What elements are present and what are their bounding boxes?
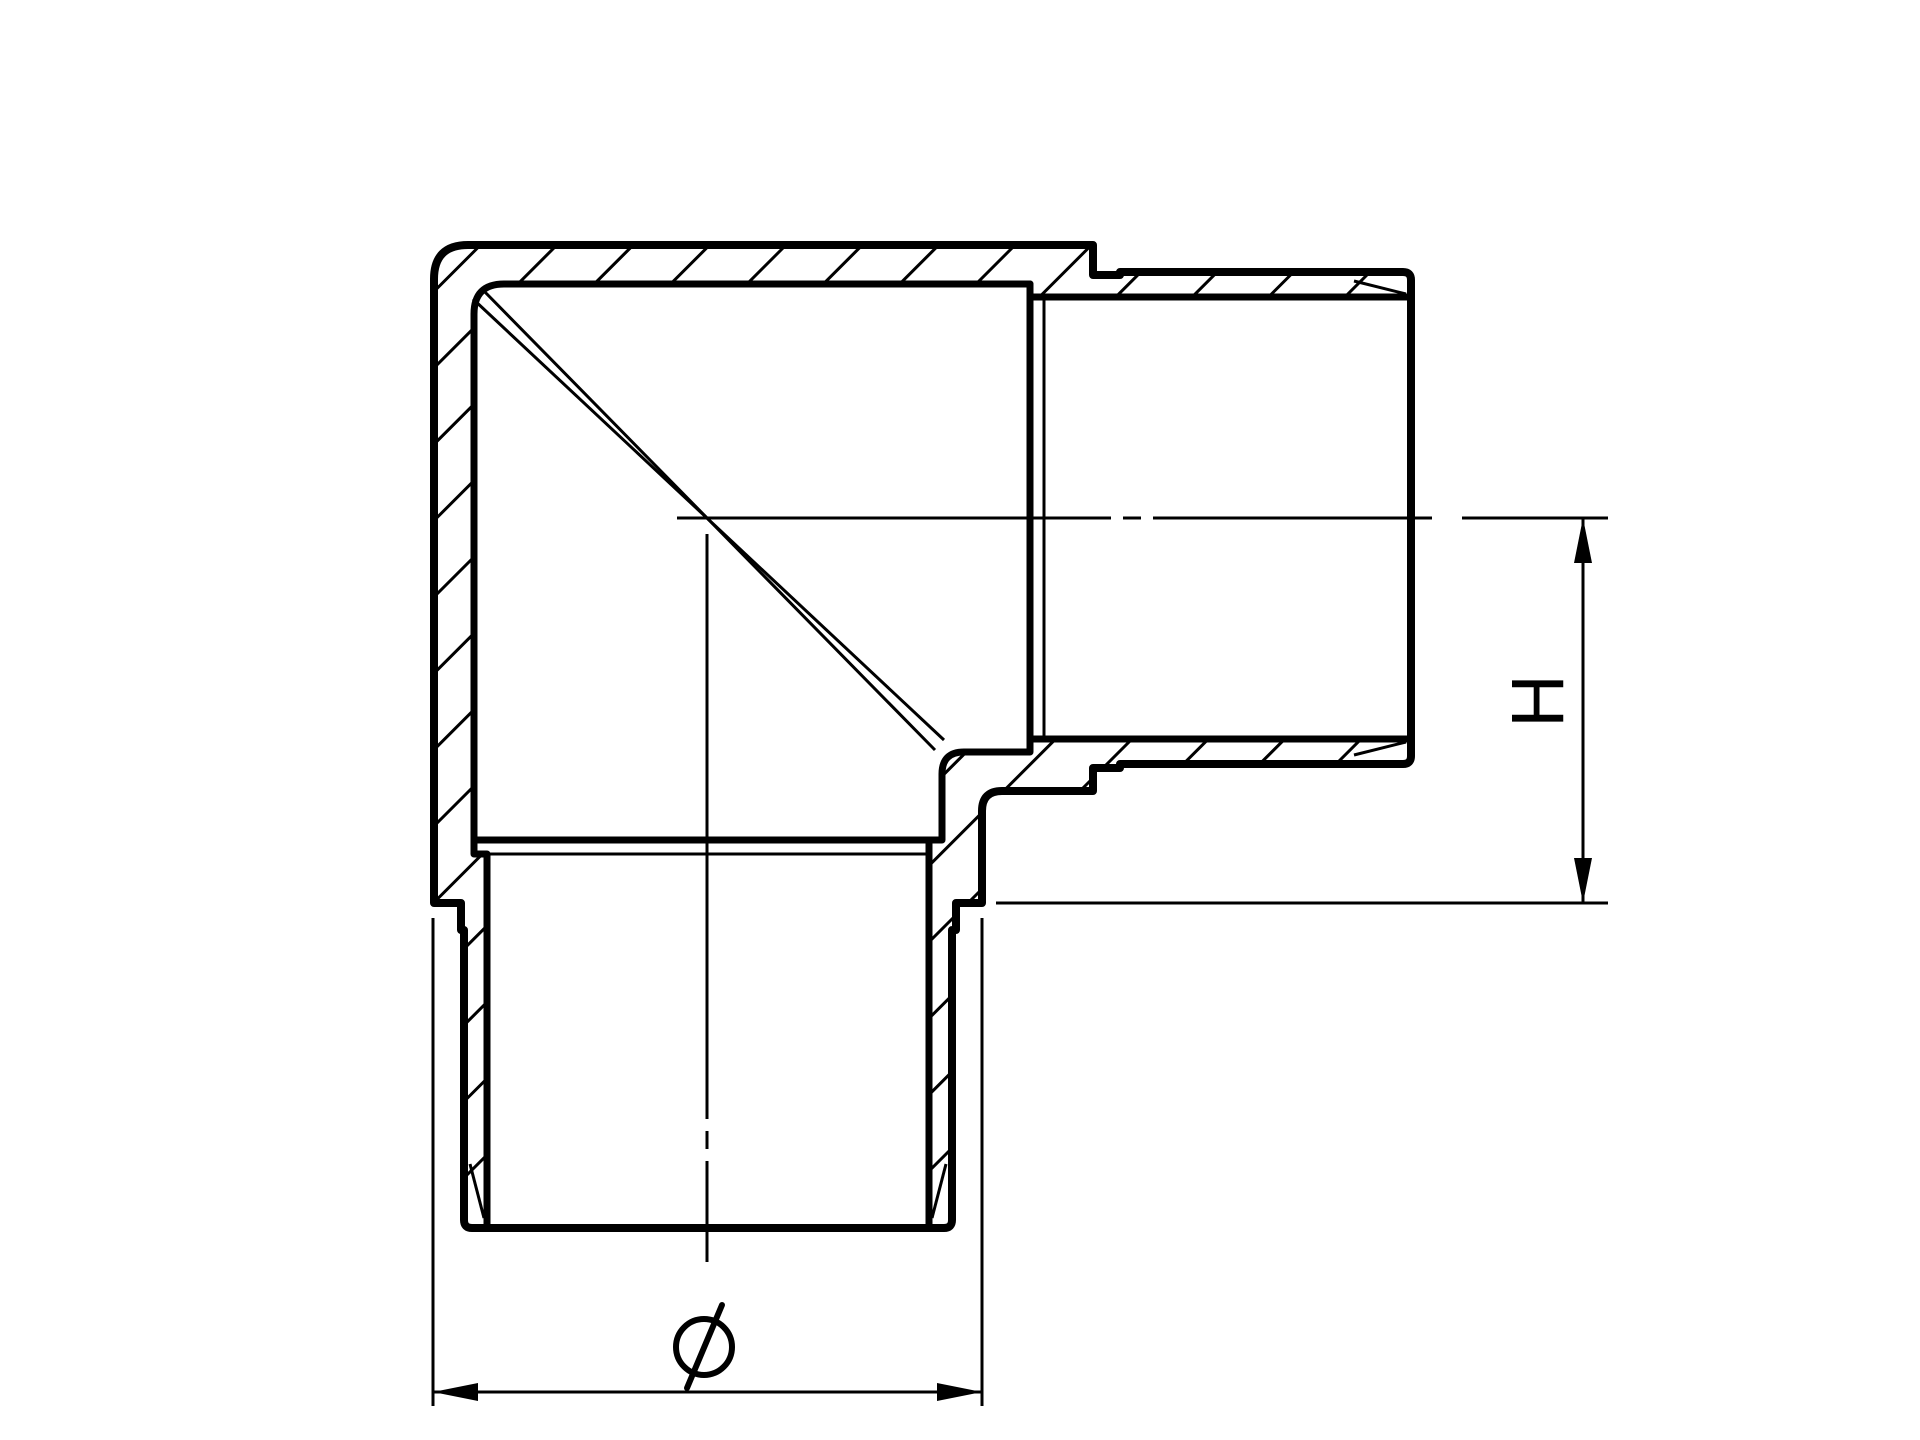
- elbow-fitting-drawing: H ⌀: [0, 0, 1920, 1440]
- sheet-background: [0, 0, 1920, 1440]
- height-dimension-label: H: [1496, 674, 1579, 727]
- technical-drawing-canvas: H ⌀: [0, 0, 1920, 1440]
